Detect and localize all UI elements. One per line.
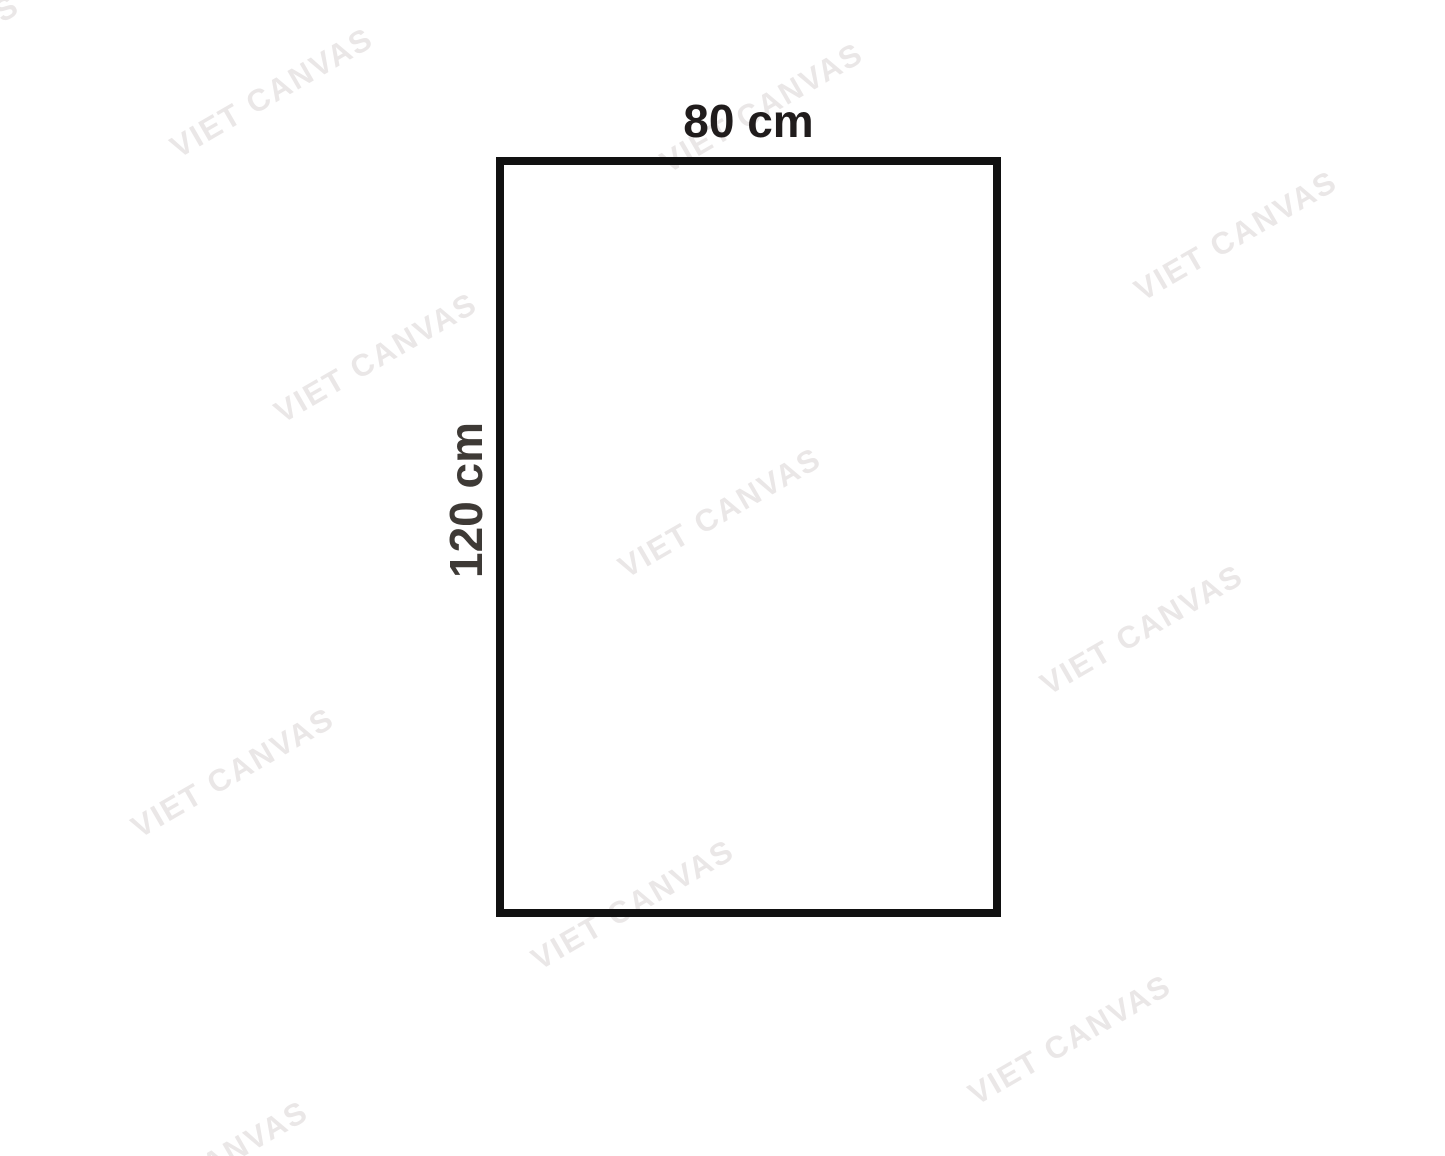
watermark-text: VIET CANVAS — [268, 285, 484, 430]
watermark-text: VIET CANVAS — [99, 1093, 315, 1156]
height-label: 120 cm — [439, 422, 493, 578]
watermark-text: VIET CANVAS — [164, 20, 380, 165]
watermark-text: VIET CANVAS — [1034, 557, 1250, 702]
watermark-text: VIET CANVAS — [1433, 1039, 1445, 1156]
width-label: 80 cm — [496, 95, 1001, 147]
canvas-outline — [496, 157, 1001, 917]
watermark-text: VIET CANVAS — [962, 967, 1178, 1112]
watermark-text: VIET CANVAS — [125, 700, 341, 845]
product-dimension-diagram: VIET CANVAS VIET CANVAS VIET CANVAS VIET… — [0, 0, 1445, 1156]
watermark-text: VIET CANVAS — [1128, 163, 1344, 308]
watermark-text: VIET CANVAS — [0, 0, 26, 133]
